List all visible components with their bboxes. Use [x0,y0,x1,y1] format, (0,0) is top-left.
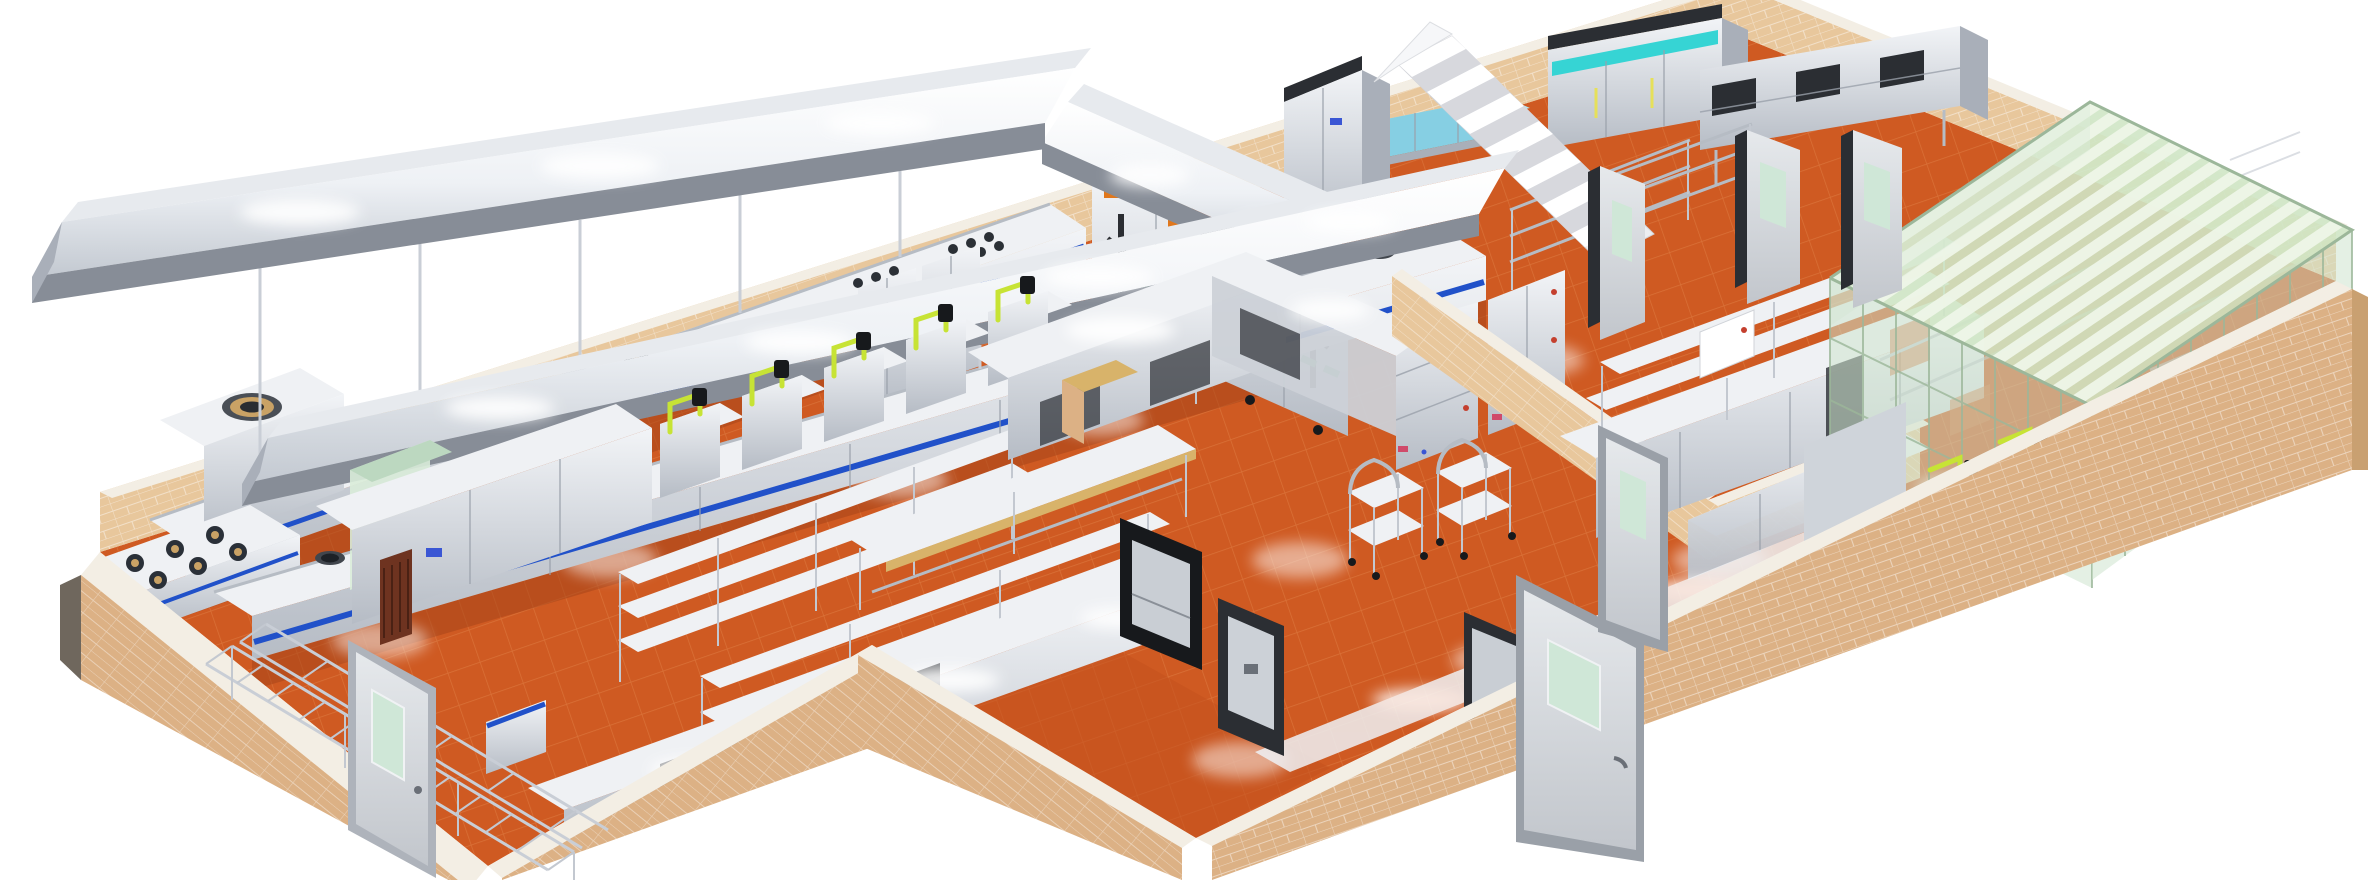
wall-cabinet-side [1960,26,1988,120]
kitchen-render-canvas [0,0,2368,880]
right-end-wall [2352,289,2368,470]
door-right-corridor [1588,166,1645,340]
fridge-logo [1330,118,1342,125]
wall-corner-shadow [60,575,81,680]
door-near-wall [1598,425,1668,652]
door-right-corridor [1841,130,1902,308]
door-right-corridor [1735,130,1800,304]
kitchen-3d-render [0,0,2368,880]
counter-logo [426,548,442,557]
